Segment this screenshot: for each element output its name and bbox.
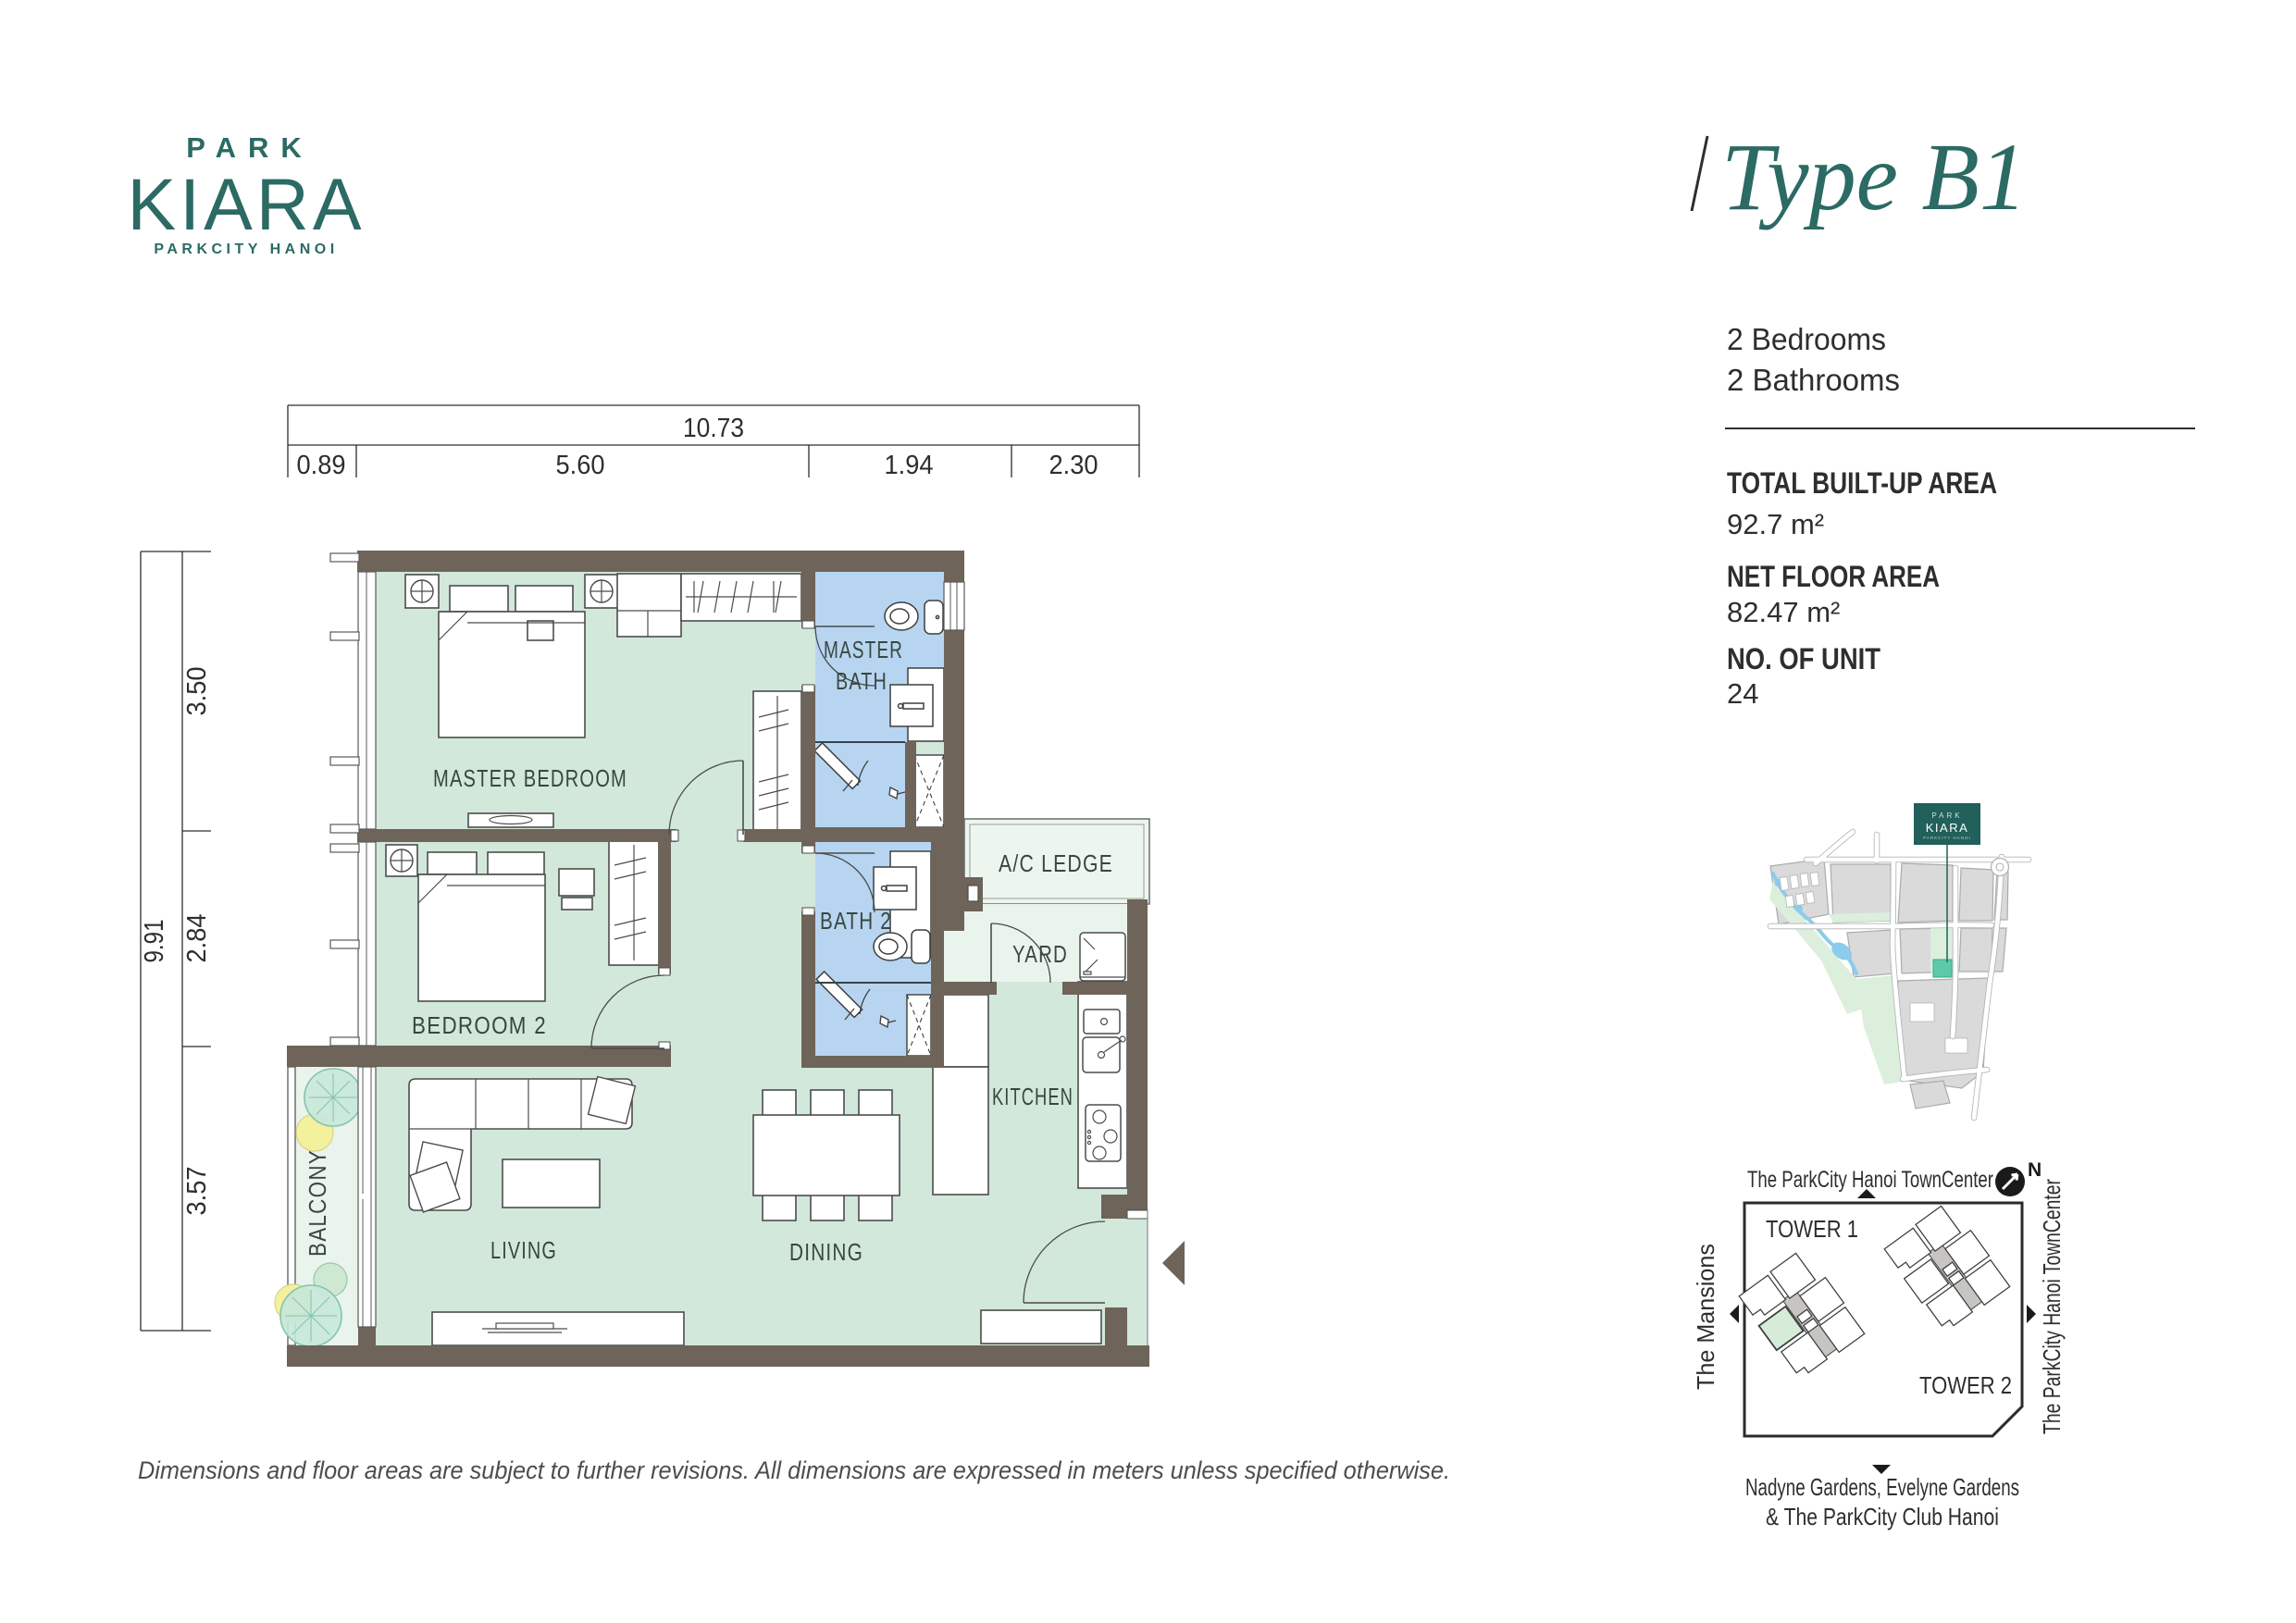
svg-text:2.84: 2.84 bbox=[182, 914, 212, 963]
svg-text:0.89: 0.89 bbox=[297, 451, 346, 480]
svg-text:KIARA: KIARA bbox=[127, 163, 365, 245]
svg-text:LIVING: LIVING bbox=[490, 1236, 557, 1264]
svg-text:PARKCITY HANOI: PARKCITY HANOI bbox=[154, 242, 338, 257]
svg-text:82.47 m²: 82.47 m² bbox=[1727, 596, 1840, 628]
svg-text:5.60: 5.60 bbox=[556, 451, 605, 480]
svg-text:DINING: DINING bbox=[789, 1238, 863, 1266]
svg-text:BALCONY: BALCONY bbox=[304, 1149, 331, 1257]
svg-text:MASTER BEDROOM: MASTER BEDROOM bbox=[433, 764, 627, 792]
svg-text:NET FLOOR AREA: NET FLOOR AREA bbox=[1727, 560, 1940, 593]
svg-text:BEDROOM 2: BEDROOM 2 bbox=[412, 1011, 547, 1039]
svg-text:2.30: 2.30 bbox=[1049, 451, 1098, 480]
svg-text:2 Bathrooms: 2 Bathrooms bbox=[1727, 363, 1900, 397]
svg-text:PARKCITY HANOI: PARKCITY HANOI bbox=[1923, 836, 1971, 840]
svg-text:3.50: 3.50 bbox=[182, 667, 212, 716]
svg-text:N: N bbox=[2028, 1159, 2042, 1181]
svg-text:PARK: PARK bbox=[1931, 811, 1962, 820]
svg-text:Nadyne Gardens, Evelyne Garden: Nadyne Gardens, Evelyne Gardens bbox=[1745, 1473, 2019, 1501]
svg-text:TOTAL BUILT-UP AREA: TOTAL BUILT-UP AREA bbox=[1727, 466, 1997, 500]
svg-text:KITCHEN: KITCHEN bbox=[992, 1083, 1074, 1110]
svg-text:The ParkCity Hanoi TownCenter: The ParkCity Hanoi TownCenter bbox=[1747, 1167, 1993, 1193]
svg-text:TOWER 1: TOWER 1 bbox=[1766, 1215, 1858, 1243]
svg-text:The ParkCity Hanoi TownCenter: The ParkCity Hanoi TownCenter bbox=[2038, 1179, 2066, 1434]
svg-text:KIARA: KIARA bbox=[1926, 821, 1969, 835]
svg-text:2 Bedrooms: 2 Bedrooms bbox=[1727, 322, 1886, 356]
svg-text:24: 24 bbox=[1727, 677, 1758, 710]
svg-text:NO. OF UNIT: NO. OF UNIT bbox=[1727, 642, 1880, 675]
svg-text:PARK: PARK bbox=[186, 131, 314, 164]
svg-text:3.57: 3.57 bbox=[182, 1167, 212, 1216]
svg-text:Dimensions and floor areas are: Dimensions and floor areas are subject t… bbox=[138, 1456, 1450, 1484]
svg-text:& The ParkCity Club Hanoi: & The ParkCity Club Hanoi bbox=[1766, 1503, 1999, 1530]
svg-text:1.94: 1.94 bbox=[885, 451, 934, 480]
svg-text:YARD: YARD bbox=[1012, 940, 1068, 968]
svg-text:10.73: 10.73 bbox=[683, 414, 744, 443]
svg-text:BATH: BATH bbox=[836, 667, 887, 695]
svg-text:Type B1: Type B1 bbox=[1721, 124, 2027, 230]
svg-text:9.91: 9.91 bbox=[140, 920, 169, 963]
svg-text:MASTER: MASTER bbox=[824, 636, 903, 663]
svg-text:TOWER 2: TOWER 2 bbox=[1919, 1371, 2012, 1399]
svg-text:A/C LEDGE: A/C LEDGE bbox=[999, 849, 1113, 877]
svg-text:92.7 m²: 92.7 m² bbox=[1727, 508, 1824, 540]
svg-text:The Mansions: The Mansions bbox=[1692, 1244, 1719, 1390]
svg-text:BATH 2: BATH 2 bbox=[820, 907, 892, 935]
